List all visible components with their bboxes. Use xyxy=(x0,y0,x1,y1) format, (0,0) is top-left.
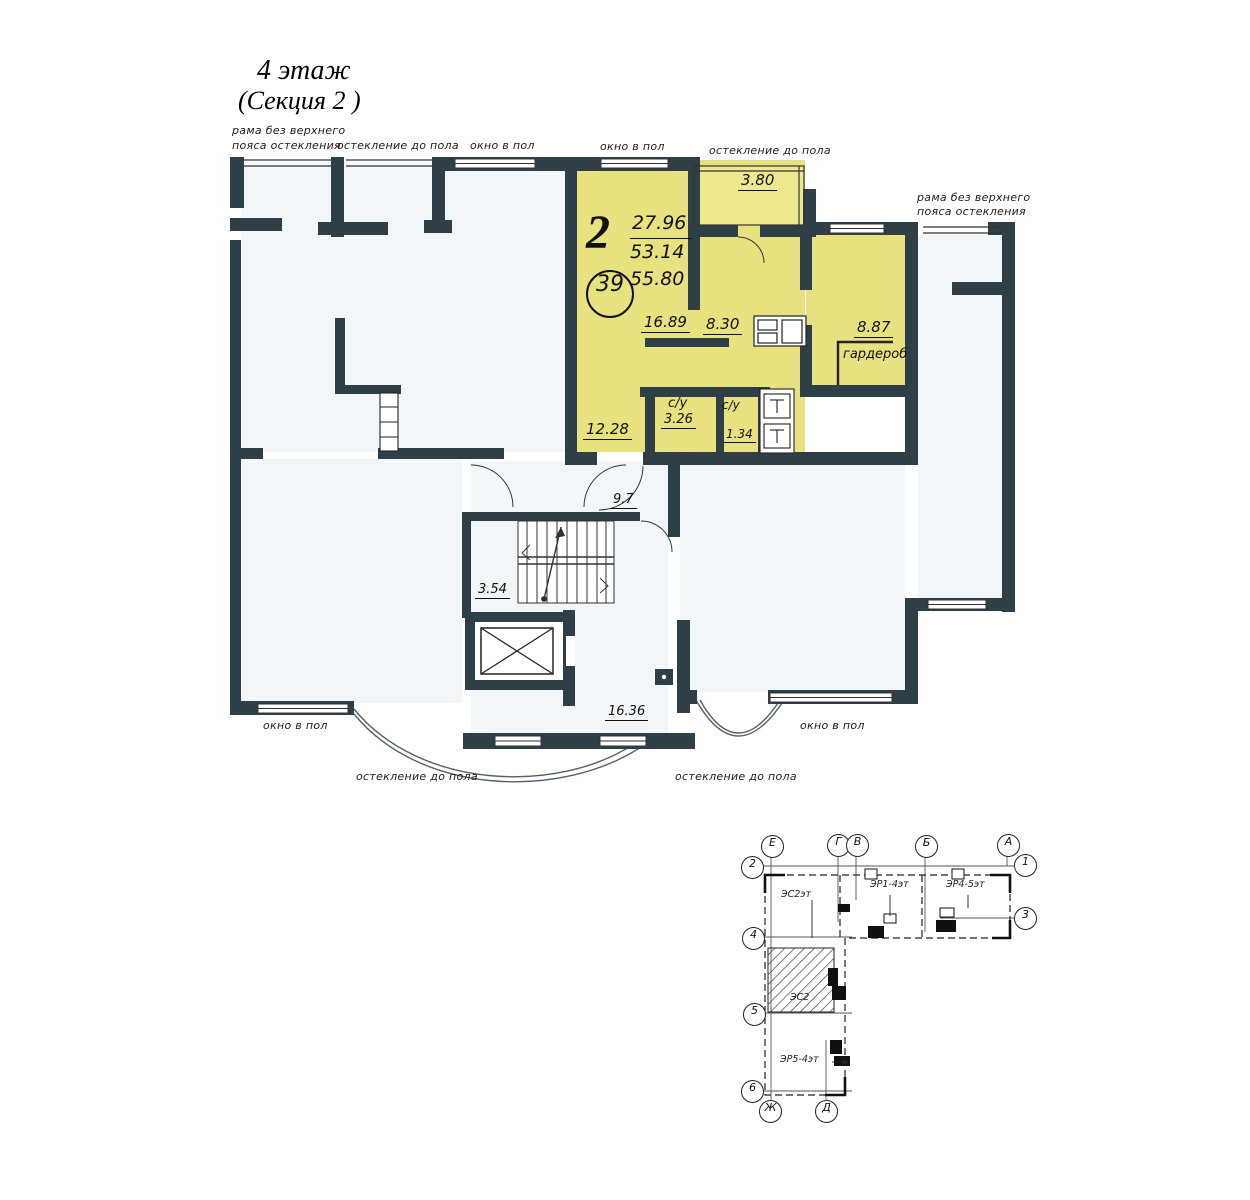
label-glazing-bottom-left: остекление до пола xyxy=(356,770,478,783)
keyplan-section-bottom: ЭР5-4эт xyxy=(780,1054,819,1065)
label-frame-right-line2: пояса остекления xyxy=(917,205,1026,218)
keyplan-section-hatched: ЭС2 xyxy=(790,992,809,1003)
axis-bubble-E: Е xyxy=(761,835,784,858)
keyplan-section-mid: ЭР1-4эт xyxy=(870,879,909,890)
keyplan-section-right: ЭР4-5эт xyxy=(946,879,985,890)
area-corridor: 9.7 xyxy=(610,492,637,509)
apartment-number-badge: 39 xyxy=(586,270,634,318)
area-bathroom: 3.26 xyxy=(661,412,696,429)
label-glazing-top: остекление до пола xyxy=(337,139,459,152)
apartment-area-total: 55.80 xyxy=(630,268,684,290)
floor-plan-drawing xyxy=(0,0,1250,1200)
area-bedroom: 8.87 xyxy=(854,318,893,338)
axis-bubble-D: Д xyxy=(815,1100,838,1123)
label-window-bottom-left: окно в пол xyxy=(263,719,328,732)
axis-bubble-2: 2 xyxy=(741,856,764,879)
label-window-bottom-right: окно в пол xyxy=(800,719,865,732)
axis-bubble-4: 4 xyxy=(742,927,765,950)
label-window-top-2: окно в пол xyxy=(600,140,665,153)
column-dot xyxy=(662,675,666,679)
apartment-area-no-balcony: 53.14 xyxy=(630,241,684,263)
bay-window-right xyxy=(696,700,784,736)
stairwell xyxy=(518,521,614,603)
area-stairs: 3.54 xyxy=(475,582,510,599)
label-frame-top-line1: рама без верхнего xyxy=(232,124,345,137)
area-kitchen: 8.30 xyxy=(703,315,742,335)
towel-radiator xyxy=(760,389,794,453)
axis-bubble-V: В xyxy=(846,834,869,857)
shelf-fixture xyxy=(380,393,398,451)
axis-bubble-Zh: Ж xyxy=(759,1100,782,1123)
axis-bubble-1: 1 xyxy=(1014,854,1037,877)
elevator xyxy=(475,622,575,680)
area-balcony: 3.80 xyxy=(738,171,777,191)
axis-bubble-B: Б xyxy=(915,835,938,858)
label-window-top-1: окно в пол xyxy=(470,139,535,152)
area-living-room: 16.89 xyxy=(641,313,690,333)
label-frame-top-line2: пояса остекления xyxy=(232,139,341,152)
axis-bubble-3: 3 xyxy=(1014,907,1037,930)
label-wardrobe: гардероб xyxy=(843,347,907,362)
floor-plan-page: 4 этаж (Секция 2 ) рама без верхнего поя… xyxy=(0,0,1250,1200)
kitchen-unit xyxy=(754,316,806,346)
area-wc: 1.34 xyxy=(723,427,756,443)
label-wc: с/у xyxy=(722,398,740,412)
page-title-section: (Секция 2 ) xyxy=(238,86,361,116)
label-glazing-bottom-right: остекление до пола xyxy=(675,770,797,783)
area-room2: 12.28 xyxy=(583,420,632,440)
threshold-hatch xyxy=(645,453,701,464)
axis-bubble-5: 5 xyxy=(743,1003,766,1026)
room-fills xyxy=(241,160,1002,733)
label-bathroom: с/у xyxy=(668,396,687,411)
area-lobby: 16.36 xyxy=(605,704,648,721)
apartment-rooms-count: 2 xyxy=(586,205,610,260)
page-title-floor: 4 этаж xyxy=(257,55,351,87)
apartment-area-living: 27.96 xyxy=(630,210,692,239)
label-frame-right-line1: рама без верхнего xyxy=(917,191,1030,204)
axis-bubble-A: А xyxy=(997,834,1020,857)
keyplan-section-left: ЭС2эт xyxy=(781,889,811,900)
axis-bubble-6: 6 xyxy=(741,1080,764,1103)
label-glazing-top-right: остекление до пола xyxy=(709,144,831,157)
